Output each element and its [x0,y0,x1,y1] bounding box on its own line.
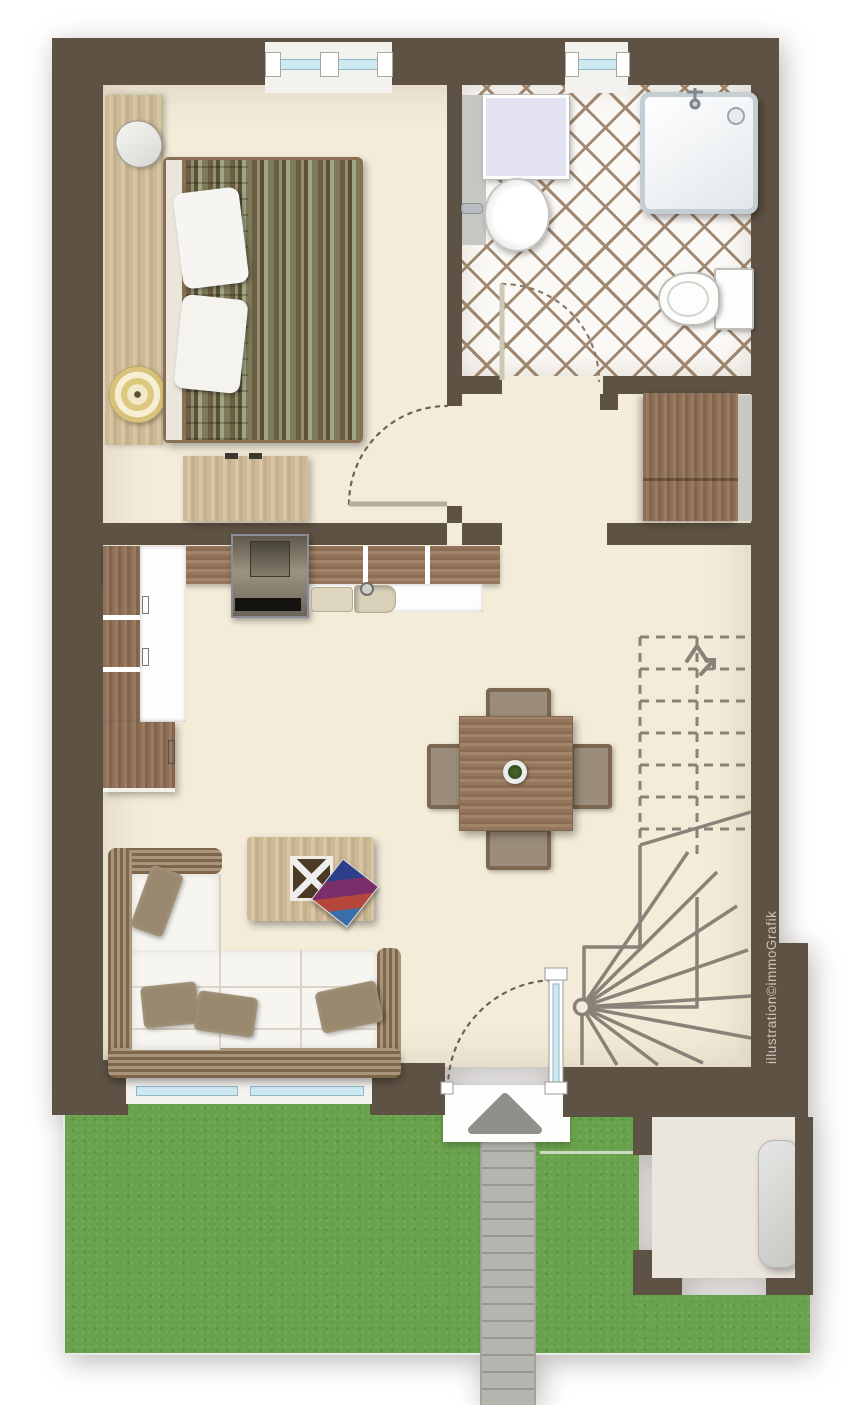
front-door-block-top [545,968,567,980]
staircase-lower-solid [575,812,752,1065]
floor-plan-canvas: illustration©immoGrafik [0,0,866,1405]
bathroom-door [502,284,599,381]
entrance-arrow-icon [472,1097,538,1130]
front-door-swing-arc [448,980,553,1088]
front-door-leaf-glass [553,984,559,1084]
watermark-text: illustration©immoGrafik [764,910,779,1064]
front-door-block-bottom [545,1082,567,1094]
front-door [441,968,567,1094]
staircase-upper-dashed [640,637,750,857]
bathroom-door-swing-arc [502,284,599,381]
bedroom-door-swing-arc [349,406,447,504]
floor-plan: illustration©immoGrafik [0,0,866,1405]
shower-faucet-icon [687,88,703,108]
bedroom-door [349,406,447,504]
plan-overlay: illustration©immoGrafik [0,0,866,1405]
front-door-block-wall [441,1082,453,1094]
